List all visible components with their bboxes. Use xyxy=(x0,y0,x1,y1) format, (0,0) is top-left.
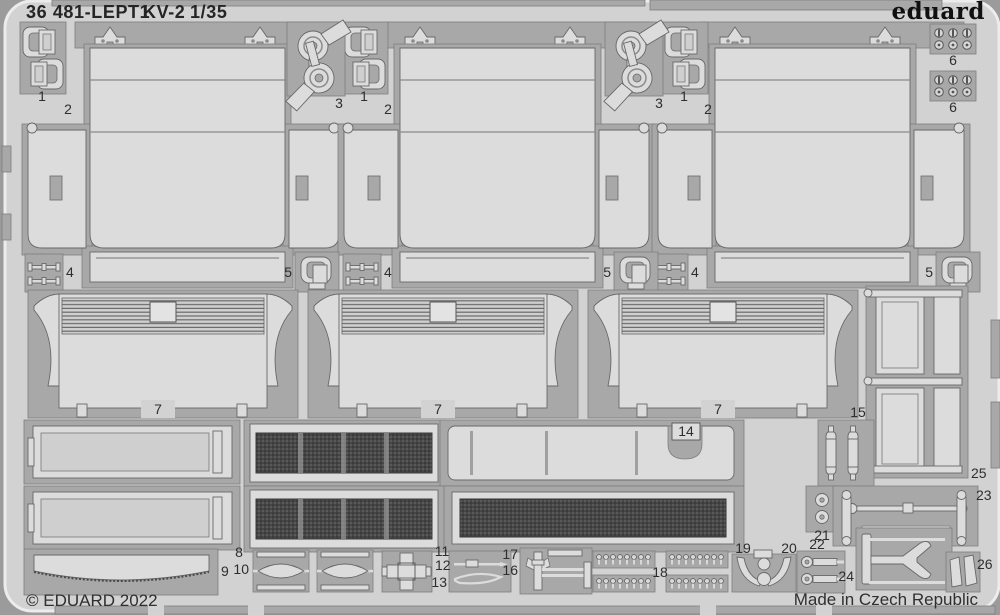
part-11-mesh-bottom xyxy=(244,486,446,552)
part-19-20-wings xyxy=(732,550,796,592)
part-15-capsules xyxy=(818,420,874,486)
part-label-5: 5 xyxy=(284,264,292,280)
part-label-19: 19 xyxy=(735,540,751,556)
part-label-5: 5 xyxy=(925,264,933,280)
part-label-17: 17 xyxy=(502,546,518,562)
part-14-slotted-panel xyxy=(440,420,744,486)
part-label-20: 20 xyxy=(781,540,797,556)
part-label-24: 24 xyxy=(838,568,854,584)
part-label-2: 2 xyxy=(64,101,72,117)
part-16-17-rod-assembly xyxy=(520,548,592,594)
sheet-scale: 1/35 xyxy=(190,2,227,22)
part-label-1: 1 xyxy=(360,88,368,104)
part-label-16: 16 xyxy=(502,562,518,578)
part-label-1: 1 xyxy=(38,88,46,104)
made-in-text: Made in Czech Republic xyxy=(794,590,979,609)
part-label-22: 22 xyxy=(809,536,825,552)
part-label-1: 1 xyxy=(680,88,688,104)
part-label-12: 12 xyxy=(435,557,451,573)
part-label-10: 10 xyxy=(233,561,249,577)
part-label-18: 18 xyxy=(652,564,668,580)
part-label-3: 3 xyxy=(655,95,663,111)
part-9-saw-strip xyxy=(24,549,218,595)
part-label-2: 2 xyxy=(704,101,712,117)
frame-slot-left-2 xyxy=(2,214,11,240)
part-label-5: 5 xyxy=(603,264,611,280)
part-label-15: 15 xyxy=(850,404,866,420)
part-label-26: 26 xyxy=(977,556,993,572)
part-label-23: 23 xyxy=(976,487,992,503)
sheet-kit-name: KV-2 xyxy=(143,2,185,22)
part-label-6: 6 xyxy=(949,52,957,68)
part-label-9: 9 xyxy=(221,563,229,579)
part-8-bottom xyxy=(24,486,240,550)
long-mesh-grille xyxy=(444,486,744,552)
part-11-mesh-top xyxy=(244,420,446,486)
pe-fret-sheet: 7 xyxy=(0,0,1000,615)
part-label-3: 3 xyxy=(335,95,343,111)
screenshot: 7 xyxy=(0,0,1000,615)
part-8-top xyxy=(24,420,240,484)
eduard-logo: eduard xyxy=(891,0,985,25)
part-label-14: 14 xyxy=(678,423,694,439)
copyright-text: © EDUARD 2022 xyxy=(26,591,158,610)
part-label-2: 2 xyxy=(384,101,392,117)
part-label-8: 8 xyxy=(235,544,243,560)
part-label-13: 13 xyxy=(431,574,447,590)
frame-slot-right-2 xyxy=(991,402,1000,468)
part-26-blades xyxy=(946,552,980,592)
part-25-frame xyxy=(864,286,968,478)
frame-slot-right-1 xyxy=(991,320,1000,378)
part-label-4: 4 xyxy=(691,264,699,280)
frame-slot-left-1 xyxy=(2,146,11,172)
part-label-4: 4 xyxy=(384,264,392,280)
part-label-25: 25 xyxy=(971,465,987,481)
sheet-catalog-number: 36 481-LEPT1 xyxy=(26,2,150,22)
part-12-cross xyxy=(382,551,432,592)
part-24-tow-bracket xyxy=(856,528,952,590)
part-label-4: 4 xyxy=(66,264,74,280)
part-label-6: 6 xyxy=(949,99,957,115)
